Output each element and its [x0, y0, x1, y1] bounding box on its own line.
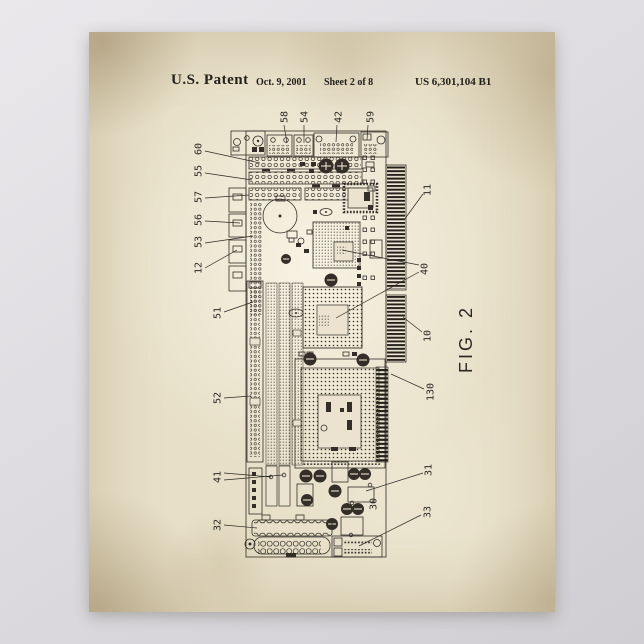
- ref-label-31: 31: [424, 464, 435, 476]
- ref-label-59: 59: [366, 111, 377, 123]
- leader-line: [391, 374, 424, 389]
- ref-label-55: 55: [194, 165, 205, 177]
- ref-label-12: 12: [194, 262, 205, 274]
- patent-number: US 6,301,104 B1: [415, 76, 491, 88]
- ref-label-40: 40: [420, 263, 431, 275]
- leader-line: [404, 194, 423, 220]
- battery: [263, 196, 304, 244]
- leader-line: [224, 302, 253, 312]
- figure-caption: FIG. 2: [456, 304, 480, 374]
- ref-label-57: 57: [194, 191, 205, 203]
- leader-line: [205, 250, 237, 268]
- ref-label-42: 42: [334, 111, 345, 123]
- ref-label-33: 33: [423, 506, 434, 518]
- leader-line: [284, 125, 287, 143]
- pga-socket-upper: [303, 287, 362, 348]
- sheet-number: Sheet 2 of 8: [324, 77, 373, 88]
- card-edge-connector: [386, 165, 406, 362]
- leader-line: [367, 125, 368, 140]
- memory-sockets: [247, 281, 303, 514]
- patent-poster: U.S. Patent Oct. 9, 2001 Sheet 2 of 8 US…: [89, 32, 555, 612]
- patent-date: Oct. 9, 2001: [256, 77, 307, 88]
- pga-socket-lower: [295, 359, 385, 468]
- ref-label-58: 58: [280, 111, 291, 123]
- leader-line: [366, 473, 423, 491]
- patent-figure: 5854425960555756531251524132114010130313…: [183, 100, 483, 575]
- ref-label-56: 56: [194, 214, 205, 226]
- ref-label-10: 10: [423, 330, 434, 342]
- leader-line: [205, 221, 240, 223]
- mockup-background: U.S. Patent Oct. 9, 2001 Sheet 2 of 8 US…: [0, 0, 644, 644]
- ref-label-54: 54: [300, 111, 311, 123]
- ref-label-53: 53: [194, 236, 205, 248]
- ref-label-60: 60: [194, 143, 205, 155]
- ref-label-52: 52: [213, 392, 224, 404]
- ref-label-51: 51: [213, 307, 224, 319]
- ref-label-130: 130: [426, 383, 437, 401]
- leader-line: [336, 125, 337, 142]
- leader-line: [205, 173, 252, 180]
- ref-label-32: 32: [213, 519, 224, 531]
- bga-chip: [313, 222, 360, 268]
- ref-label-11: 11: [423, 184, 434, 196]
- ref-label-41: 41: [213, 471, 224, 483]
- ref-label-30: 30: [369, 498, 380, 510]
- patent-label: U.S. Patent: [171, 72, 249, 89]
- top-connector-row: [233, 132, 388, 157]
- bottom-connectors: [245, 515, 382, 558]
- leader-line: [359, 515, 421, 546]
